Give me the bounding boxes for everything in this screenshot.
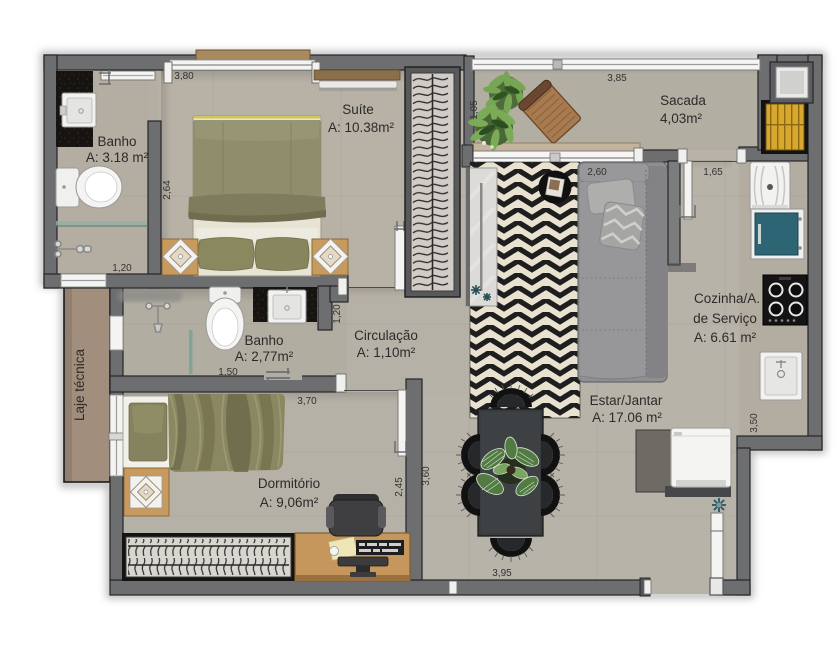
svg-text:Estar/Jantar: Estar/Jantar xyxy=(590,393,663,408)
svg-text:2,45: 2,45 xyxy=(394,477,405,497)
svg-text:A: 2,77m²: A: 2,77m² xyxy=(235,349,294,364)
svg-text:Banho: Banho xyxy=(244,333,283,348)
svg-text:3,50: 3,50 xyxy=(749,413,760,433)
svg-text:1,50: 1,50 xyxy=(218,367,238,378)
svg-text:1,65: 1,65 xyxy=(703,167,723,178)
svg-text:1,05: 1,05 xyxy=(469,100,480,120)
svg-text:A: 10.38m²: A: 10.38m² xyxy=(328,120,395,135)
svg-text:Suíte: Suíte xyxy=(342,102,374,117)
svg-text:4,03m²: 4,03m² xyxy=(660,111,703,126)
svg-text:2,64: 2,64 xyxy=(162,180,173,200)
svg-text:3,70: 3,70 xyxy=(297,396,317,407)
svg-text:3,80: 3,80 xyxy=(174,71,194,82)
svg-text:3,85: 3,85 xyxy=(607,73,627,84)
svg-text:A: 9,06m²: A: 9,06m² xyxy=(260,495,319,510)
svg-text:Circulação: Circulação xyxy=(354,328,418,343)
svg-text:3,60: 3,60 xyxy=(421,466,432,486)
svg-text:A: 17.06 m²: A: 17.06 m² xyxy=(592,410,662,425)
svg-text:1,20: 1,20 xyxy=(112,263,132,274)
svg-text:Banho: Banho xyxy=(97,134,136,149)
svg-text:Sacada: Sacada xyxy=(660,93,706,108)
svg-text:1,20: 1,20 xyxy=(332,304,343,324)
svg-text:2,60: 2,60 xyxy=(587,167,607,178)
svg-text:de Serviço: de Serviço xyxy=(693,311,757,326)
svg-text:A: 3.18 m²: A: 3.18 m² xyxy=(86,150,149,165)
svg-text:A: 6.61 m²: A: 6.61 m² xyxy=(694,330,757,345)
svg-text:A: 1,10m²: A: 1,10m² xyxy=(357,345,416,360)
svg-text:Cozinha/A.: Cozinha/A. xyxy=(694,291,760,306)
svg-text:Dormitório: Dormitório xyxy=(258,476,320,491)
svg-text:3,95: 3,95 xyxy=(492,568,512,579)
svg-text:Laje técnica: Laje técnica xyxy=(72,348,87,421)
